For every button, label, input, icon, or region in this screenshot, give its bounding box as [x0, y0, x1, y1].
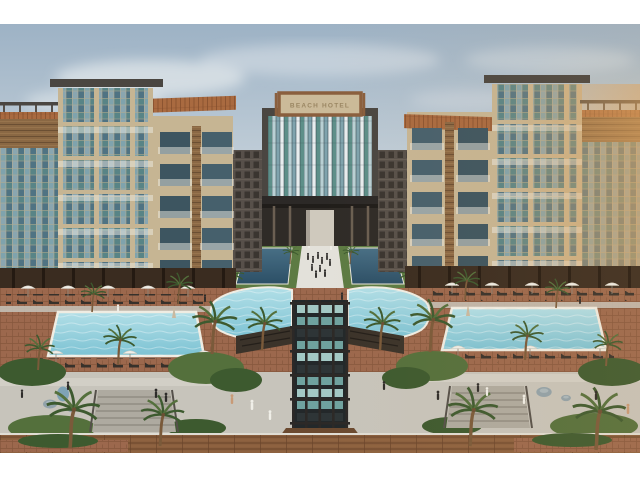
- rendered-image: BEACH HOTEL: [0, 0, 640, 480]
- bottom-white-bar: [0, 453, 640, 480]
- hotel-resort-rendering: BEACH HOTEL: [0, 0, 640, 480]
- light-wash: [320, 24, 640, 453]
- top-white-bar: [0, 0, 640, 24]
- inner-facade-left: [233, 150, 262, 272]
